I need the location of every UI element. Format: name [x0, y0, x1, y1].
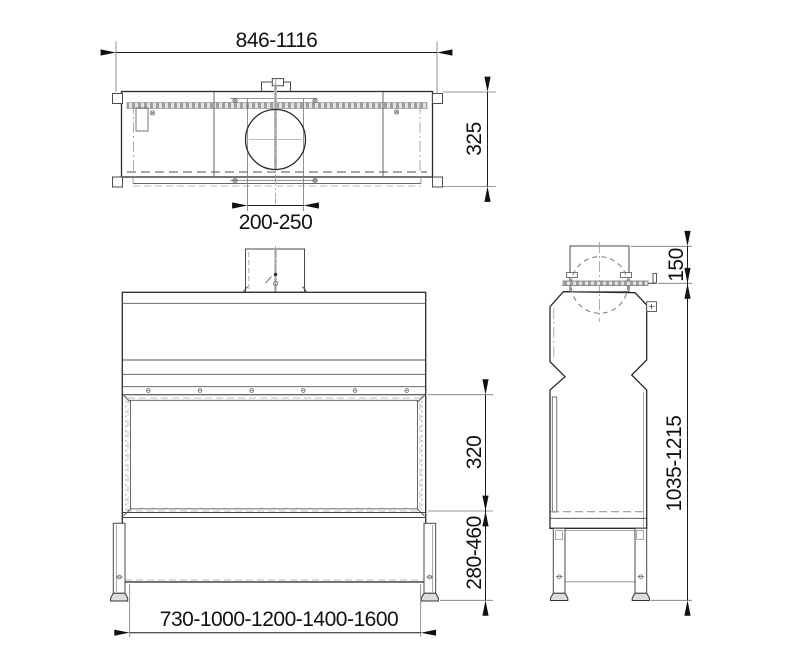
corner-tab: [433, 94, 443, 104]
dim-top-depth: 325: [443, 92, 496, 187]
corner-tab: [433, 177, 443, 187]
dim-overall-height: 1035-1215: [651, 283, 692, 600]
side-body: [550, 292, 647, 529]
dim-label-flue-height: 150: [665, 248, 688, 282]
technical-drawing-page: 846-1116 325 200-250: [0, 0, 807, 663]
foot: [551, 593, 568, 600]
corner-tab: [113, 94, 123, 104]
dim-label-duct: 200-250: [239, 211, 313, 234]
dim-opening-height: 320: [428, 395, 493, 511]
dim-front-widths: 730-1000-1200-1400-1600: [130, 584, 421, 637]
dim-label-opening-height: 320: [463, 436, 486, 470]
foot: [111, 593, 128, 601]
dim-label-overall-height: 1035-1215: [663, 416, 686, 512]
hood-body: [122, 292, 425, 582]
dim-label-base-height: 280-460: [463, 516, 486, 590]
top-view: [113, 79, 443, 211]
front-left-leg: [111, 523, 128, 601]
dim-label-top-width: 846-1116: [236, 29, 318, 52]
dim-label-front-widths: 730-1000-1200-1400-1600: [160, 608, 398, 631]
marker-dot: [274, 273, 278, 277]
foot: [632, 593, 649, 600]
mounting-flange: [563, 281, 648, 286]
side-right-leg: [632, 528, 649, 600]
flue-stub-tab: [272, 79, 283, 86]
side-left-leg: [551, 528, 568, 600]
bracket-lip: [653, 274, 657, 284]
front-view: [111, 246, 439, 601]
dim-duct-diameter: 200-250: [239, 206, 313, 235]
dim-label-top-depth: 325: [463, 122, 486, 156]
foot: [421, 593, 438, 601]
front-right-leg: [421, 523, 438, 601]
side-view: [550, 242, 657, 601]
dim-flue-height: 150: [631, 246, 692, 283]
drawing-canvas: 846-1116 325 200-250: [0, 0, 807, 663]
dim-base-height: 280-460: [440, 511, 493, 600]
corner-tab: [113, 177, 123, 187]
wall-bracket: [647, 302, 657, 312]
